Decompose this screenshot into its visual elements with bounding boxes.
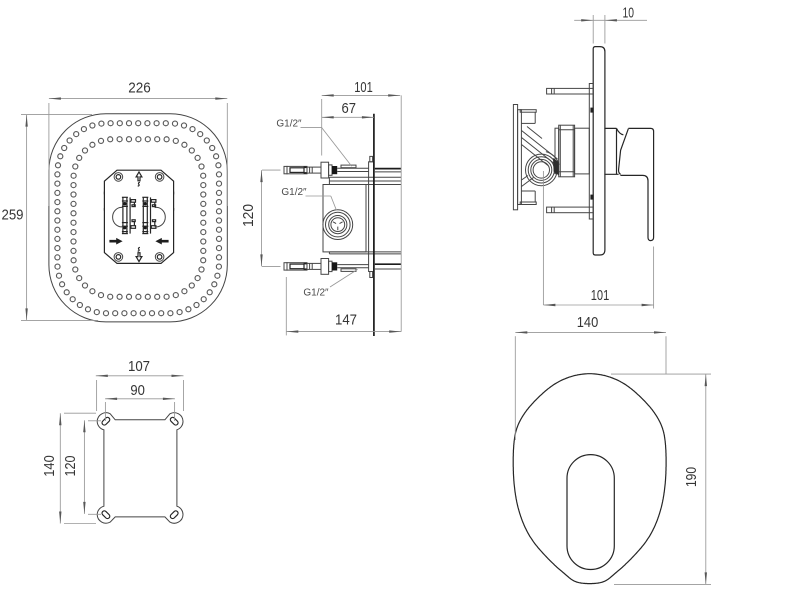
svg-text:G1/2″: G1/2″ <box>281 187 307 198</box>
svg-text:226: 226 <box>128 79 151 96</box>
svg-text:140: 140 <box>41 455 58 477</box>
svg-text:101: 101 <box>354 79 373 96</box>
svg-text:190: 190 <box>683 467 700 487</box>
svg-text:120: 120 <box>240 204 257 227</box>
svg-text:101: 101 <box>591 287 610 304</box>
svg-text:120: 120 <box>62 456 79 477</box>
svg-text:90: 90 <box>130 382 145 399</box>
svg-text:259: 259 <box>2 206 24 223</box>
svg-text:147: 147 <box>335 312 357 329</box>
svg-text:G1/2″: G1/2″ <box>303 287 329 298</box>
svg-text:107: 107 <box>128 358 150 375</box>
svg-text:10: 10 <box>623 4 635 21</box>
svg-text:140: 140 <box>577 314 599 331</box>
svg-text:67: 67 <box>342 100 357 117</box>
svg-text:G1/2″: G1/2″ <box>276 119 302 130</box>
